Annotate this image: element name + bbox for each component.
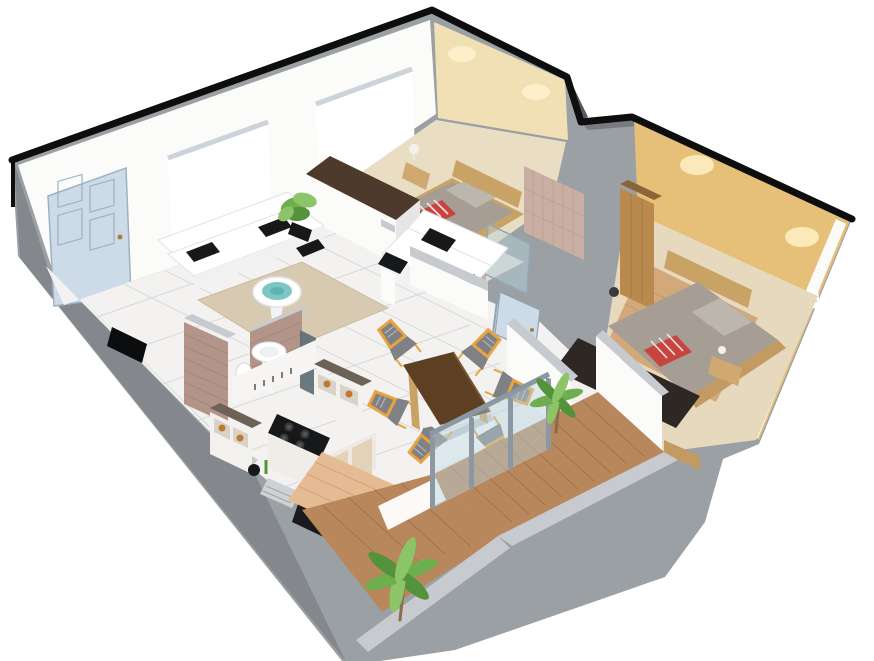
spotlight-glow xyxy=(680,155,714,175)
door-knob xyxy=(118,235,123,240)
jar xyxy=(324,381,331,388)
table-lamp xyxy=(409,144,419,154)
floorplan-canvas xyxy=(0,0,874,661)
ceiling-light-glow xyxy=(448,46,476,62)
pot xyxy=(248,464,260,476)
jar xyxy=(346,391,353,398)
floorplan-3d-render xyxy=(0,0,874,661)
jar xyxy=(237,435,244,442)
stone-decor xyxy=(609,287,619,297)
jar xyxy=(219,425,226,432)
ceiling-light-glow xyxy=(522,84,550,100)
spotlight-glow xyxy=(785,227,819,247)
table-lamp xyxy=(718,346,726,354)
door-handle xyxy=(530,328,534,332)
